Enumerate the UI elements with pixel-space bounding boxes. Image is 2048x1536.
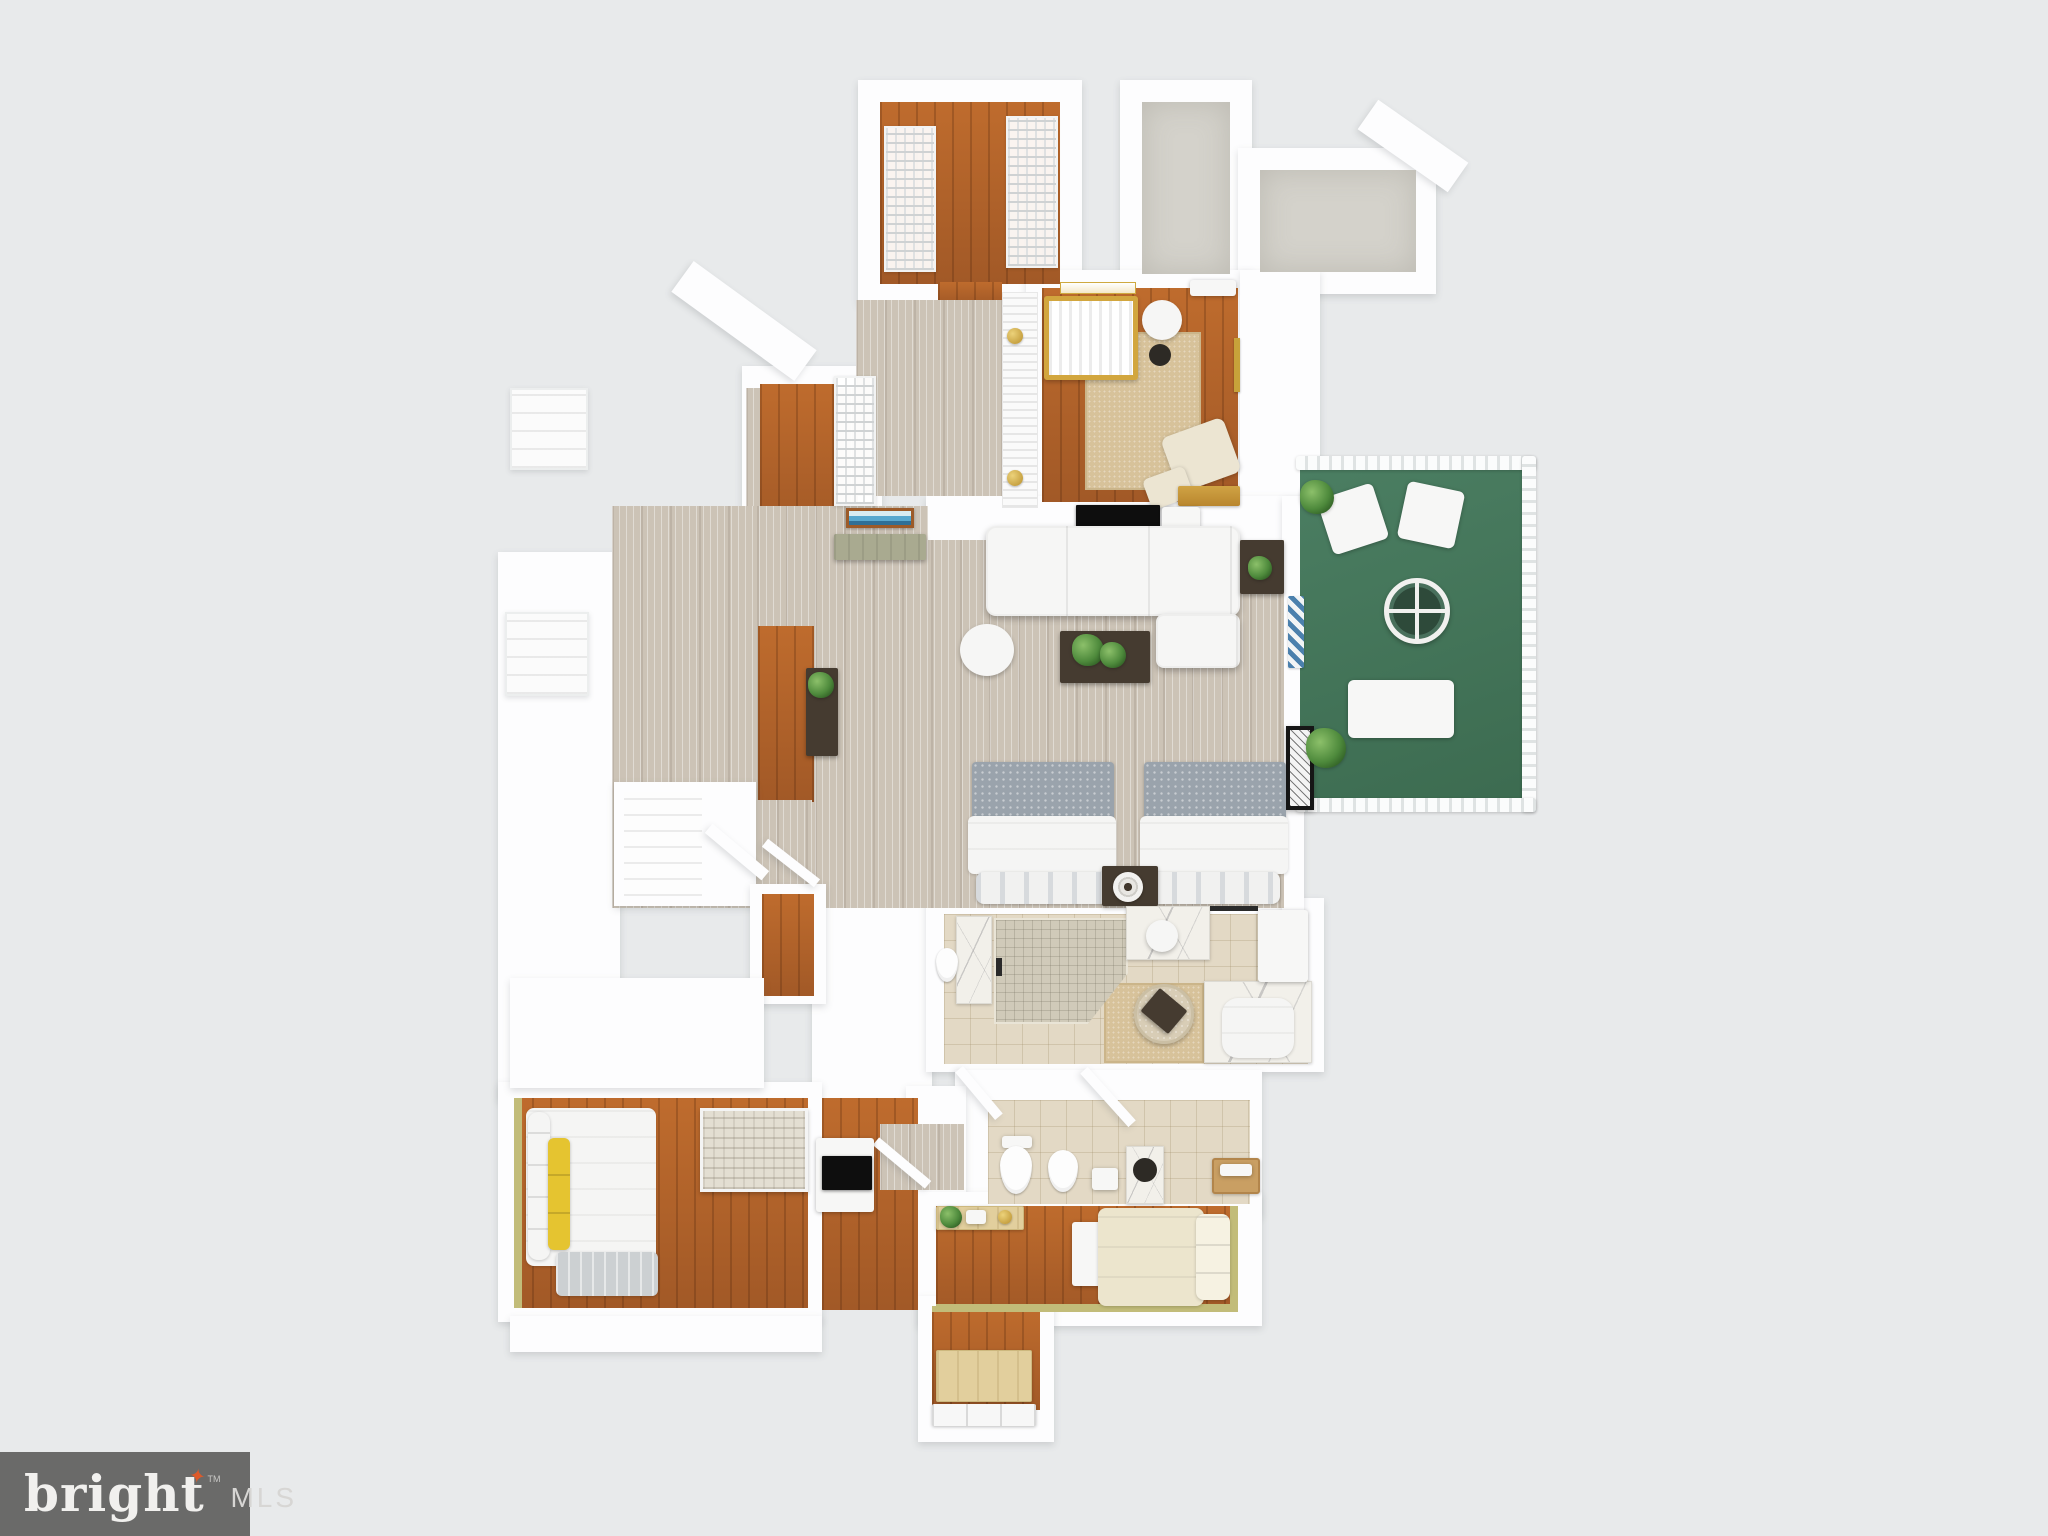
logo-brand-text: bright	[24, 1469, 205, 1519]
logo-star-icon: ✦	[187, 1462, 207, 1489]
twin-bed-1-pillows	[976, 872, 1108, 904]
corridor-west-wall	[812, 904, 932, 1110]
bath-2-hamper	[1092, 1168, 1118, 1190]
powder-room-floor	[762, 894, 814, 996]
towel-rolls	[1220, 1164, 1252, 1176]
deck-railing-right	[1522, 456, 1536, 812]
deck-towels	[1288, 596, 1304, 668]
upper-hall-floor	[856, 300, 1006, 496]
crib	[1044, 296, 1138, 380]
twin-bed-1-blanket	[972, 762, 1114, 818]
sectional-sofa	[986, 526, 1240, 616]
nursery-dresser	[1178, 486, 1240, 506]
side-table-plant	[1248, 556, 1272, 580]
bedroom-left-south-wall	[510, 1316, 822, 1352]
floorplan-canvas	[0, 0, 2048, 1536]
bedroom-left-dresser	[700, 1108, 808, 1192]
logo-trademark: TM	[207, 1474, 220, 1484]
deck-coffee-table	[1384, 578, 1450, 644]
bump-out-olive-top	[932, 1306, 1040, 1312]
nursery-vent	[1190, 280, 1236, 296]
bedroom-right-bed	[1098, 1208, 1204, 1306]
twin-bed-2-blanket	[1144, 762, 1286, 818]
nightstand-lamp	[1113, 872, 1143, 902]
nursery-floor-lamp-base	[1149, 344, 1171, 366]
bedroom-right-pillows	[1196, 1214, 1230, 1300]
entry-bench	[834, 534, 926, 560]
shower-fixture	[996, 958, 1002, 976]
nursery-floor-lamp-shade	[1142, 300, 1182, 340]
coffee-table-plant-1	[1072, 634, 1104, 666]
desk-bowl	[998, 1210, 1012, 1224]
brightmls-logo: bright ✦ TM MLS	[0, 1452, 250, 1536]
deck-plant-1	[1300, 480, 1334, 514]
bedroom-tv	[822, 1156, 872, 1190]
desk-plant	[940, 1206, 962, 1228]
closet-2-shelf	[834, 376, 876, 506]
pouf	[960, 624, 1014, 676]
bathtub	[1222, 998, 1294, 1058]
closet-top-shelf-left	[884, 126, 936, 272]
twin-bed-1	[968, 816, 1116, 874]
twin-bed-2	[1140, 816, 1288, 874]
master-sink	[1146, 920, 1178, 952]
beach-artwork	[846, 508, 914, 528]
shower-marble-wall	[956, 916, 992, 1004]
deck-plant-2	[1306, 728, 1346, 768]
bump-out-dresser	[936, 1350, 1032, 1402]
crib-wall-shelf	[1060, 282, 1136, 294]
mid-closet-shelves	[624, 792, 702, 896]
nursery-floor-mirror	[1234, 338, 1240, 392]
logo-suffix-text: MLS	[230, 1482, 297, 1514]
deck-sofa	[1348, 680, 1454, 738]
bump-out-drawers	[932, 1404, 1036, 1426]
desk-laptop	[966, 1210, 986, 1224]
bedroom-left-olive-west	[514, 1098, 522, 1308]
bath-2-sink	[1133, 1158, 1157, 1182]
bedroom-left-yellow-pillows	[548, 1138, 570, 1250]
closet-top-shelf-right	[1006, 116, 1058, 268]
bedroom-left-foot-blanket	[556, 1252, 658, 1296]
closet-door-knob-1	[1007, 328, 1023, 344]
bedroom-right-olive-east	[1230, 1206, 1238, 1312]
bedroom-left-pillows	[528, 1112, 550, 1260]
storage-room-2-floor	[1260, 170, 1416, 272]
west-wall-niche-2	[505, 612, 589, 696]
deck-armchair-2	[1397, 481, 1466, 550]
upper-hall-diagonal-wall	[671, 261, 816, 381]
west-wall-niche-1	[510, 388, 588, 470]
lower-roof-mass	[510, 978, 764, 1088]
coffee-table-plant-2	[1100, 642, 1126, 668]
sectional-chaise	[1156, 614, 1240, 668]
twin-bed-2-pillows	[1148, 872, 1280, 904]
towel-bar	[1210, 906, 1258, 911]
closet-door-knob-2	[1007, 470, 1023, 486]
deck-railing-bottom	[1296, 798, 1536, 812]
deck-railing-top	[1296, 456, 1536, 470]
console-plant	[808, 672, 834, 698]
storage-room-1-floor	[1142, 102, 1230, 274]
linen-cabinet	[1258, 910, 1308, 982]
